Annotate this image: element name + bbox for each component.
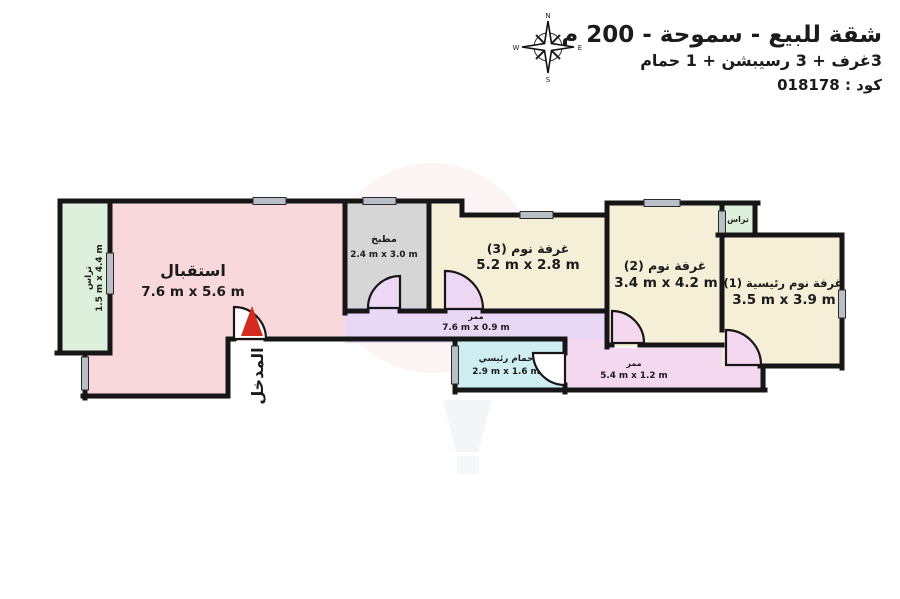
corridor-upper-label: ممر [467, 312, 483, 321]
floor-plan: REMAX [0, 0, 900, 599]
window-kitchen-top [363, 198, 396, 205]
corridor-lower-dims: 5.4 m x 1.2 m [600, 371, 667, 381]
compass-star [522, 21, 574, 73]
watermark-balloon-basket [457, 456, 479, 474]
compass-w: W [513, 44, 520, 52]
window-terrace-left-divider [107, 253, 114, 294]
bedroom-2-dims: 3.4 m x 4.2 m [614, 275, 717, 291]
reception-label: استقبال [160, 261, 226, 280]
compass-e: E [578, 44, 582, 52]
bedroom-3-label: غرفة نوم (3) [487, 241, 570, 257]
bedroom-3-dims: 5.2 m x 2.8 m [476, 257, 579, 273]
watermark-balloon-cone [443, 400, 492, 452]
bedroom-2-label: غرفة نوم (2) [624, 258, 707, 274]
window-lower-left [82, 357, 89, 390]
compass-n: N [545, 12, 550, 20]
reception-dims: 7.6 m x 5.6 m [141, 284, 244, 300]
compass-s: S [546, 76, 551, 84]
kitchen-label: مطبخ [371, 234, 397, 245]
master-bedroom-label: غرفة نوم رئيسية (1) [723, 276, 842, 291]
master-bedroom-dims: 3.5 m x 3.9 m [732, 292, 835, 308]
corridor-upper-dims: 7.6 m x 0.9 m [442, 323, 509, 333]
kitchen-dims: 2.4 m x 3.0 m [350, 250, 417, 260]
terrace-left-dims: 1.5 m x 4.4 m [95, 244, 105, 311]
window-reception-top [253, 198, 286, 205]
window-bedroom-3-top [520, 212, 553, 219]
window-terrace-right [719, 211, 726, 233]
compass-rose: N E S W [513, 12, 583, 84]
window-bathroom-left [452, 346, 459, 384]
bathroom-dims: 2.9 m x 1.6 m [472, 367, 539, 377]
terrace-left-label: تراس [84, 266, 94, 290]
window-bedroom-2-top [644, 200, 680, 207]
entrance-label: المدخل [248, 347, 267, 404]
terrace-right-label: تراس [727, 215, 749, 225]
window-master-right [839, 290, 846, 318]
bathroom-label: حمام رئيسي [479, 354, 534, 364]
corridor-lower-label: ممر [625, 359, 641, 368]
